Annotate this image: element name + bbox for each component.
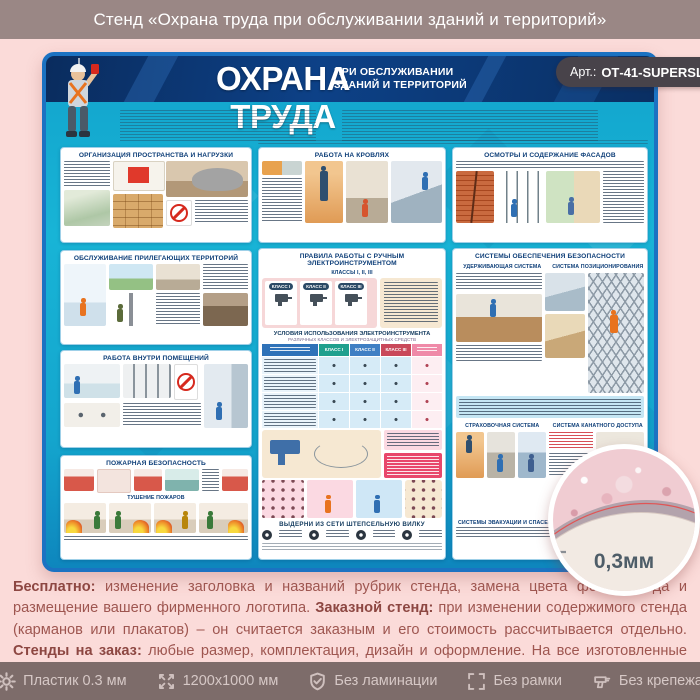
illustration-firefighting [199,503,248,533]
panel-title: РАБОТА ВНУТРИ ПОМЕЩЕНИЙ [64,355,248,362]
panel-organization: ОРГАНИЗАЦИЯ ПРОСТРАНСТВА И НАГРУЗКИ [60,147,252,243]
panel-title: ПРАВИЛА РАБОТЫ С РУЧНЫМ ЭЛЕКТРОИНСТРУМЕН… [262,253,442,268]
step-icon [262,530,272,540]
panel-title: РАБОТА НА КРОВЛЯХ [262,152,442,159]
dimensions-icon [157,672,176,691]
intro-text-placeholder [342,110,598,142]
illustration-snow-clearing [64,264,106,326]
text-placeholder [195,200,248,224]
illustration-prohibition-sign [174,364,198,400]
illustration-fall-arrest [487,432,515,478]
illustration-hose-valve [165,469,199,491]
text-placeholder [202,469,219,491]
drill-icon [310,294,323,302]
text-placeholder [456,273,542,291]
illustration-worker-harness [305,161,343,223]
text-placeholder [384,282,438,322]
frame-icon [467,672,486,691]
material-detail-circle: 0,3мм [548,444,700,596]
illustration-floor-plan [113,161,165,191]
panel-title: ПОЖАРНАЯ БЕЗОПАСНОСТЬ [64,460,248,467]
description-bold: Заказной стенд: [315,600,433,616]
step-icon [402,530,412,540]
panel-title: ОСМОТРЫ И СОДЕРЖАНИЕ ФАСАДОВ [456,152,644,159]
illustration-roof-anchors [545,273,585,311]
safety-sub-title: СИСТЕМА ПОЗИЦИОНИРОВАНИЯ [552,264,645,270]
step-icon [356,530,366,540]
illustration-fall-arrest [518,432,546,478]
illustration-street [156,264,200,290]
intro-text-placeholder [258,140,648,144]
illustration-manhole [203,293,248,326]
description-bold: Бесплатно: [13,579,95,595]
text-placeholder [156,293,200,326]
text-placeholder [262,543,442,551]
safety-sub-title: УДЕРЖИВАЮЩАЯ СИСТЕМА [456,264,549,270]
thickness-label: 0,3мм [553,550,695,574]
gear-icon [0,672,16,691]
prohibited-note [384,453,442,478]
intro-text-placeholder [120,110,316,142]
worker-illustration [54,58,104,151]
text-placeholder [456,345,542,361]
illustration-firefighting [109,503,151,533]
drill-icon [345,294,358,302]
safety-sub-title: СИСТЕМА КАНАТНОГО ДОСТУПА [552,423,645,429]
page-title: Стенд «Охрана труда при обслуживании зда… [0,0,700,39]
illustration-cable-rules [262,480,304,518]
shield-check-icon [308,672,327,691]
illustration-edge-restraint [456,294,542,342]
illustration-park [109,264,153,290]
text-placeholder [64,536,248,542]
spec-dimensions: 1200х1000 мм [157,672,279,691]
spec-footer: Пластик 0.3 мм 1200х1000 мм Без ламинаци… [0,662,700,700]
illustration-tower-climber [588,273,644,393]
table-header-class2: КЛАСС II [350,344,380,356]
panel-power-tools: ПРАВИЛА РАБОТЫ С РУЧНЫМ ЭЛЕКТРОИНСТРУМЕН… [258,248,446,560]
safety-sub-title: СТРАХОВОЧНАЯ СИСТЕМА [456,423,549,429]
drill-icon [275,294,288,302]
tools-subtitle: КЛАССЫ I, II, III [262,270,442,276]
step-icon [309,530,319,540]
text-placeholder [459,399,641,415]
panel-facades: ОСМОТРЫ И СОДЕРЖАНИЕ ФАСАДОВ [452,147,648,243]
illustration-tool-cable-diagram [262,430,381,478]
illustration-worker-warning [307,480,353,518]
illustration-brick-crack [456,171,494,223]
illustration-prohibition-sign [166,200,192,226]
text-placeholder [456,161,644,169]
illustration-workers-heads [262,161,302,175]
tool-class-label: КЛАСС I [269,283,293,290]
panel-title: ОБСЛУЖИВАНИЕ ПРИЛЕГАЮЩИХ ТЕРРИТОРИЙ [64,255,248,262]
illustration-barrier-zone [346,161,388,223]
spec-material: Пластик 0.3 мм [0,672,127,691]
illustration-extinguishers [64,469,94,491]
illustration-roof-tiles [545,314,585,358]
illustration-wet-floor [64,364,120,398]
spec-lamination: Без ламинации [308,672,437,691]
illustration-fall-arrest [456,432,484,478]
illustration-firefighting [64,503,106,533]
text-placeholder [123,403,201,427]
fire-sub-title: ТУШЕНИЕ ПОЖАРОВ [64,495,248,501]
tool-classes-box: КЛАСС I КЛАСС II КЛАСС III [262,278,377,328]
text-placeholder [603,171,644,223]
illustration-fire-cabinet [97,469,131,493]
illustration-city-aerial [64,190,110,226]
thickness-icon [553,550,568,574]
text-placeholder [262,178,302,222]
tool-class-card: КЛАСС II [300,281,332,325]
illustration-ladders [123,364,171,398]
tool-class-label: КЛАСС III [338,283,365,290]
text-placeholder [203,264,248,290]
panel-fire-safety: ПОЖАРНАЯ БЕЗОПАСНОСТЬ ТУШЕНИЕ ПОЖАРОВ [60,455,252,560]
illustration-power-lines [109,293,153,326]
illustration-wall-painting [204,364,248,428]
warning-text-placeholder [549,432,593,450]
panel-territory: ОБСЛУЖИВАНИЕ ПРИЛЕГАЮЩИХ ТЕРРИТОРИЙ [60,250,252,345]
illustration-roof-work [391,161,442,223]
panel-roofs: РАБОТА НА КРОВЛЯХ [258,147,446,243]
illustration-stacked-boxes [113,194,163,228]
illustration-facade-check [546,171,600,223]
tool-usage-table: КЛАСС I КЛАСС II КЛАСС III [262,344,442,428]
panel-indoor: РАБОТА ВНУТРИ ПОМЕЩЕНИЙ [60,350,252,448]
poster-subtitle: ПРИ ОБСЛУЖИВАНИИ ЗДАНИЙ И ТЕРРИТОРИЙ [334,66,467,91]
text-placeholder [64,161,110,187]
plug-rule-title: ВЫДЕРНИ ИЗ СЕТИ ШТЕПСЕЛЬНУЮ ВИЛКУ [262,521,442,528]
illustration-fire-panel [134,469,162,491]
illustration-alarm-box [222,469,248,491]
product-card: Стенд «Охрана труда при обслуживании зда… [0,0,700,700]
illustration-scaffolding [497,171,543,223]
table-subtitle: РАЗЛИЧНЫХ КЛАССОВ И ЭЛЕКТРОЗАЩИТНЫХ СРЕД… [262,337,442,342]
illustration-electrical-outlets [64,403,120,427]
caution-note [384,430,442,450]
article-prefix: Арт.: [570,65,596,79]
illustration-worker-blue [356,480,402,518]
tool-class-card: КЛАСС I [265,281,297,325]
tool-class-card: КЛАСС III [335,281,367,325]
info-box [456,396,644,418]
description-bold: Стенды на заказ: [13,643,142,659]
spec-mounting: Без крепежа [592,672,700,691]
tool-class-label: КЛАСС II [303,283,329,290]
illustration-firefighting [154,503,196,533]
spec-frame: Без рамки [467,672,561,691]
drill-icon [592,672,612,691]
panel-title: СИСТЕМЫ ОБЕСПЕЧЕНИЯ БЕЗОПАСНОСТИ [456,253,644,260]
table-header-class3: КЛАСС III [381,344,411,356]
illustration-dont-touch [405,480,442,518]
article-code: ОТ-41-SUPERSLIM [601,65,700,80]
panel-title: ОРГАНИЗАЦИЯ ПРОСТРАНСТВА И НАГРУЗКИ [64,152,248,159]
table-header-class1: КЛАСС I [319,344,349,356]
illustration-elephant-room [166,161,248,197]
article-badge: Арт.: ОТ-41-SUPERSLIM [556,57,700,87]
protective-devices-box [380,278,442,328]
